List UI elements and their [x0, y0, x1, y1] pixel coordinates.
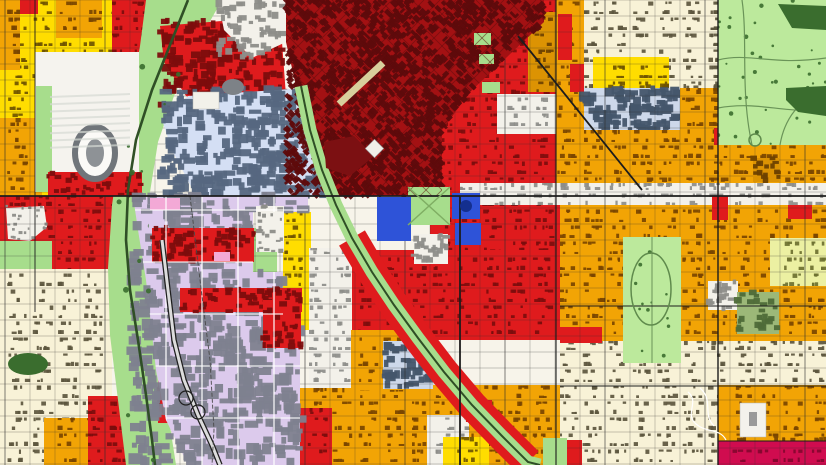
zone-east-red-sm-a	[558, 14, 572, 60]
zone-se-orange-block	[718, 385, 826, 441]
zone-ne-orange-b	[680, 88, 718, 196]
zone-ne-park-c	[482, 82, 500, 93]
zoning-map-viewport[interactable]	[0, 0, 826, 465]
zoning-map-canvas[interactable]	[0, 0, 826, 465]
zone-nw-orange-a	[0, 0, 20, 70]
zone-ne-yellow-strip	[593, 57, 669, 88]
stadium-field	[86, 139, 104, 167]
zone-school-h-block	[750, 156, 781, 183]
arena-building	[222, 79, 244, 95]
zone-west-green-strip	[0, 241, 52, 269]
zone-botanic-gardens	[734, 290, 780, 334]
zone-valley-pink-b	[214, 252, 230, 261]
zone-east-red-sm-d	[788, 205, 812, 219]
zone-civic-blue-c	[455, 223, 481, 245]
zone-colfax-white-band	[460, 183, 826, 205]
zone-east-red-sm-b	[570, 64, 586, 92]
civic-emblem	[460, 200, 472, 212]
zone-civic-white-block	[411, 233, 450, 264]
zone-south-yellow-blocks	[443, 437, 489, 465]
zone-se-green-block	[543, 438, 567, 465]
zone-lime-yellow-blocks	[770, 238, 826, 286]
zone-se-red-sm-a	[560, 327, 602, 343]
zone-valley-pink-a	[150, 198, 180, 210]
zone-se-crimson-strip	[718, 441, 826, 465]
zone-civic-blue-a	[377, 197, 411, 241]
zone-valley-red-band-c	[260, 297, 303, 349]
capitol-core	[749, 412, 757, 426]
west-pond	[8, 353, 48, 375]
zone-west-of-civic-white	[256, 204, 284, 253]
elitch-parking-lot	[193, 92, 219, 109]
